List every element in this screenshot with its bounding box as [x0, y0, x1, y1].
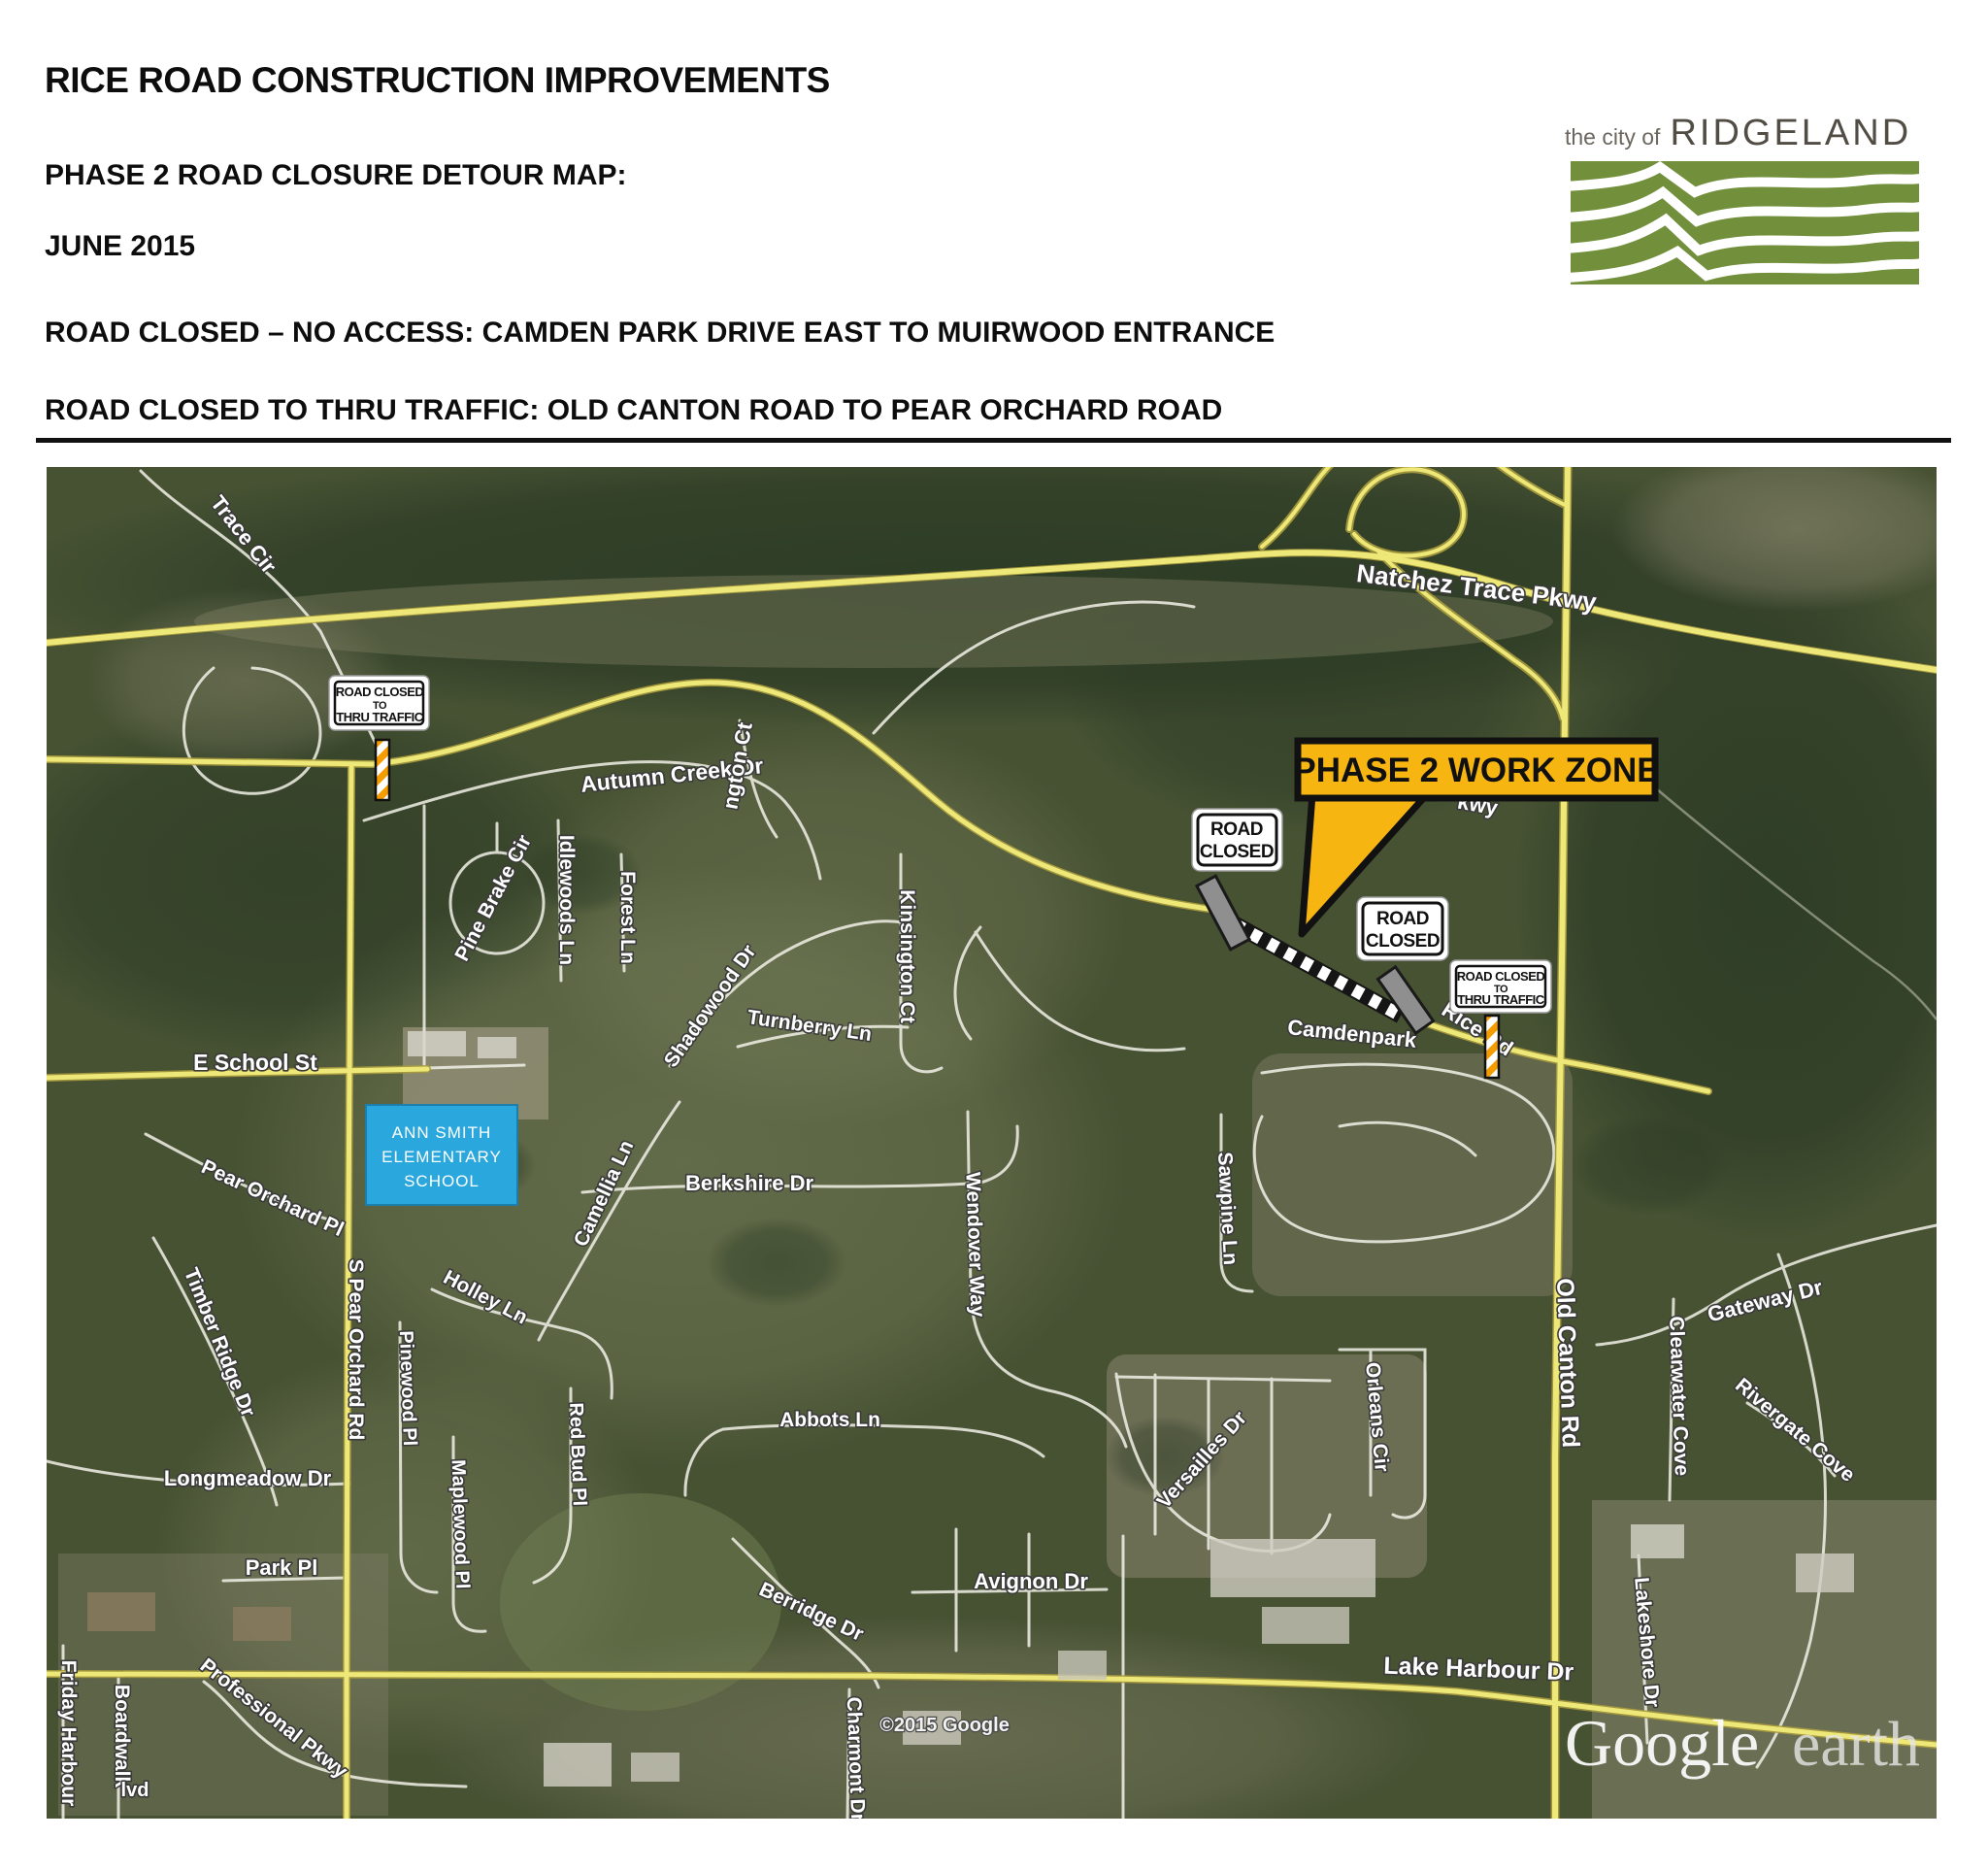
sign-line: CLOSED	[1366, 931, 1440, 952]
page-date: JUNE 2015	[45, 230, 195, 263]
page-subtitle: PHASE 2 ROAD CLOSURE DETOUR MAP:	[45, 159, 627, 192]
street-label-berkshire-dr: Berkshire Dr	[685, 1171, 814, 1195]
school-box: ANN SMITH ELEMENTARY SCHOOL	[366, 1105, 517, 1205]
street-label-idlewoods-ln: Idlewoods Ln	[555, 835, 578, 965]
closure-thru-traffic-line: ROAD CLOSED TO THRU TRAFFIC: OLD CANTON …	[45, 394, 1222, 427]
street-label-kinsington-ct: Kinsington Ct	[896, 889, 918, 1023]
logo-city-name: RIDGELAND	[1670, 113, 1911, 154]
street-label-e-school-st: E School St	[193, 1050, 317, 1075]
street-label-red-bud-pl: Red Bud Pl	[565, 1402, 590, 1506]
sign-road-closed-thru-traffic-west: ROAD CLOSED TO THRU TRAFFIC	[329, 676, 429, 730]
street-label-abbots-ln: Abbots Ln	[779, 1409, 880, 1431]
logo-tagline: the city of	[1565, 124, 1660, 150]
watermark-google: Google	[1565, 1706, 1759, 1780]
street-label-pinewood-pl: Pinewood Pl	[395, 1330, 420, 1447]
sign-line: ROAD	[1376, 909, 1429, 929]
sign-line: THRU TRAFFIC	[336, 710, 423, 724]
street-label-maplewood-pl: Maplewood Pl	[447, 1459, 474, 1589]
street-label-avignon-dr: Avignon Dr	[974, 1569, 1088, 1593]
google-attribution: ©2015 Google	[879, 1715, 1010, 1736]
sign-road-closed-west: ROAD CLOSED	[1192, 809, 1282, 871]
detour-map: Trace Cir Natchez Trace Pkwy Autumn Cree…	[47, 467, 1937, 1819]
street-label-park-pl: Park Pl	[246, 1555, 318, 1580]
closure-no-access-line: ROAD CLOSED – NO ACCESS: CAMDEN PARK DRI…	[45, 317, 1275, 350]
sign-line: ROAD CLOSED	[1457, 969, 1545, 984]
striped-marker-west	[376, 740, 389, 800]
header-divider	[36, 438, 1951, 443]
document-page: RICE ROAD CONSTRUCTION IMPROVEMENTS PHAS…	[0, 0, 1988, 1871]
sign-line: ROAD CLOSED	[336, 685, 424, 699]
sign-line: ROAD	[1210, 819, 1263, 840]
sign-road-closed-east: ROAD CLOSED	[1357, 897, 1448, 960]
school-line: SCHOOL	[404, 1172, 480, 1190]
city-logo-ridge-icon	[1571, 161, 1919, 284]
sign-line: THRU TRAFFIC	[1457, 992, 1544, 1007]
google-earth-watermark: Google earth	[1565, 1706, 1920, 1780]
street-label-friday-harbour: Friday Harbour	[57, 1660, 80, 1807]
callout-label: PHASE 2 WORK ZONE	[1293, 752, 1659, 789]
street-label-charmont-dr: Charmont Dr	[843, 1696, 869, 1819]
street-label-blvd-fragment: lvd	[121, 1780, 149, 1801]
street-label-longmeadow-dr: Longmeadow Dr	[164, 1466, 332, 1490]
watermark-earth: earth	[1792, 1709, 1920, 1780]
sign-road-closed-thru-traffic-east: ROAD CLOSED TO THRU TRAFFIC	[1450, 960, 1551, 1013]
school-line: ANN SMITH	[392, 1123, 492, 1142]
striped-marker-rice-rd	[1485, 1016, 1499, 1078]
page-title: RICE ROAD CONSTRUCTION IMPROVEMENTS	[45, 60, 830, 101]
street-label-forest-ln: Forest Ln	[616, 871, 639, 964]
city-logo-wordmark: the city of RIDGELAND	[1565, 113, 1937, 154]
street-label-s-pear-orchard-rd: S Pear Orchard Rd	[345, 1259, 367, 1441]
street-label-boardwalk: Boardwalk	[111, 1685, 133, 1788]
school-line: ELEMENTARY	[381, 1148, 502, 1166]
sign-line: CLOSED	[1200, 842, 1274, 862]
